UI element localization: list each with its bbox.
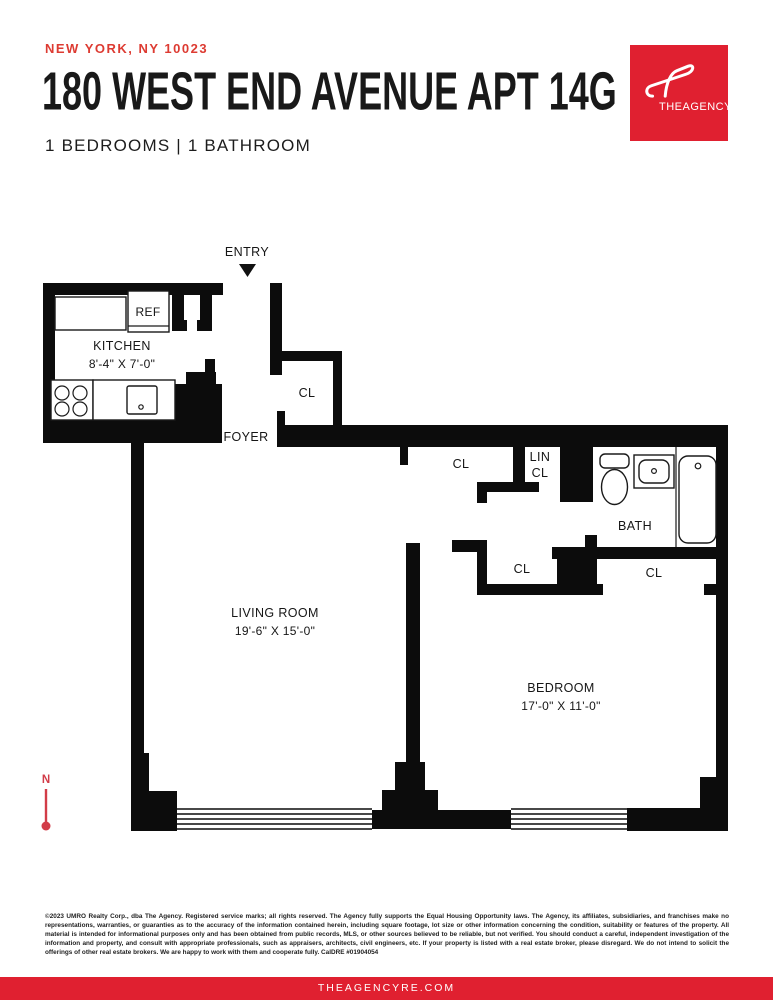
bedroom-closet-label: CL: [514, 562, 531, 576]
kitchen-counter: [55, 297, 126, 330]
bath-sink: [634, 455, 674, 488]
foyer-closet-label: CL: [299, 386, 316, 400]
compass-dot-icon: [42, 822, 51, 831]
kitchen-dims: 8'-4" X 7'-0": [89, 357, 155, 371]
bedroom-dims: 17'-0" X 11'-0": [521, 699, 600, 713]
bedroom-walls: [406, 540, 716, 765]
floorplan-drawing: ENTRY KITCHEN 8'-4" X 7'-0" REF FOYER CL…: [0, 0, 773, 1000]
entry-label: ENTRY: [225, 245, 269, 259]
stove: [51, 380, 93, 420]
bath-label: BATH: [618, 519, 652, 533]
south-walls: [131, 443, 728, 831]
kitchen-label: KITCHEN: [93, 339, 151, 353]
bedroom-window: [511, 809, 627, 829]
north-label: N: [42, 774, 50, 786]
floorplan-page: NEW YORK, NY 10023 180 WEST END AVENUE A…: [0, 0, 773, 1000]
north-compass: N: [42, 774, 51, 831]
bedroom-closet-east-label: CL: [646, 566, 663, 580]
linen-closet-label-2: CL: [532, 466, 549, 480]
website-bar: THEAGENCYRE.COM: [0, 977, 773, 1000]
living-room-label: LIVING ROOM: [231, 606, 319, 620]
fridge-label: REF: [136, 305, 161, 319]
hall-closet-label: CL: [453, 457, 470, 471]
toilet: [600, 454, 629, 505]
kitchen-sink: [93, 380, 175, 420]
foyer-label: FOYER: [223, 430, 268, 444]
living-room-dims: 19'-6" X 15'-0": [235, 624, 315, 638]
entry-arrow-icon: [239, 264, 256, 277]
bedroom-label: BEDROOM: [527, 681, 594, 695]
bathtub: [679, 456, 716, 543]
linen-closet-label-1: LIN: [530, 450, 551, 464]
legal-disclaimer: ©2023 UMRO Realty Corp., dba The Agency.…: [45, 912, 729, 957]
living-room-window: [177, 809, 372, 829]
